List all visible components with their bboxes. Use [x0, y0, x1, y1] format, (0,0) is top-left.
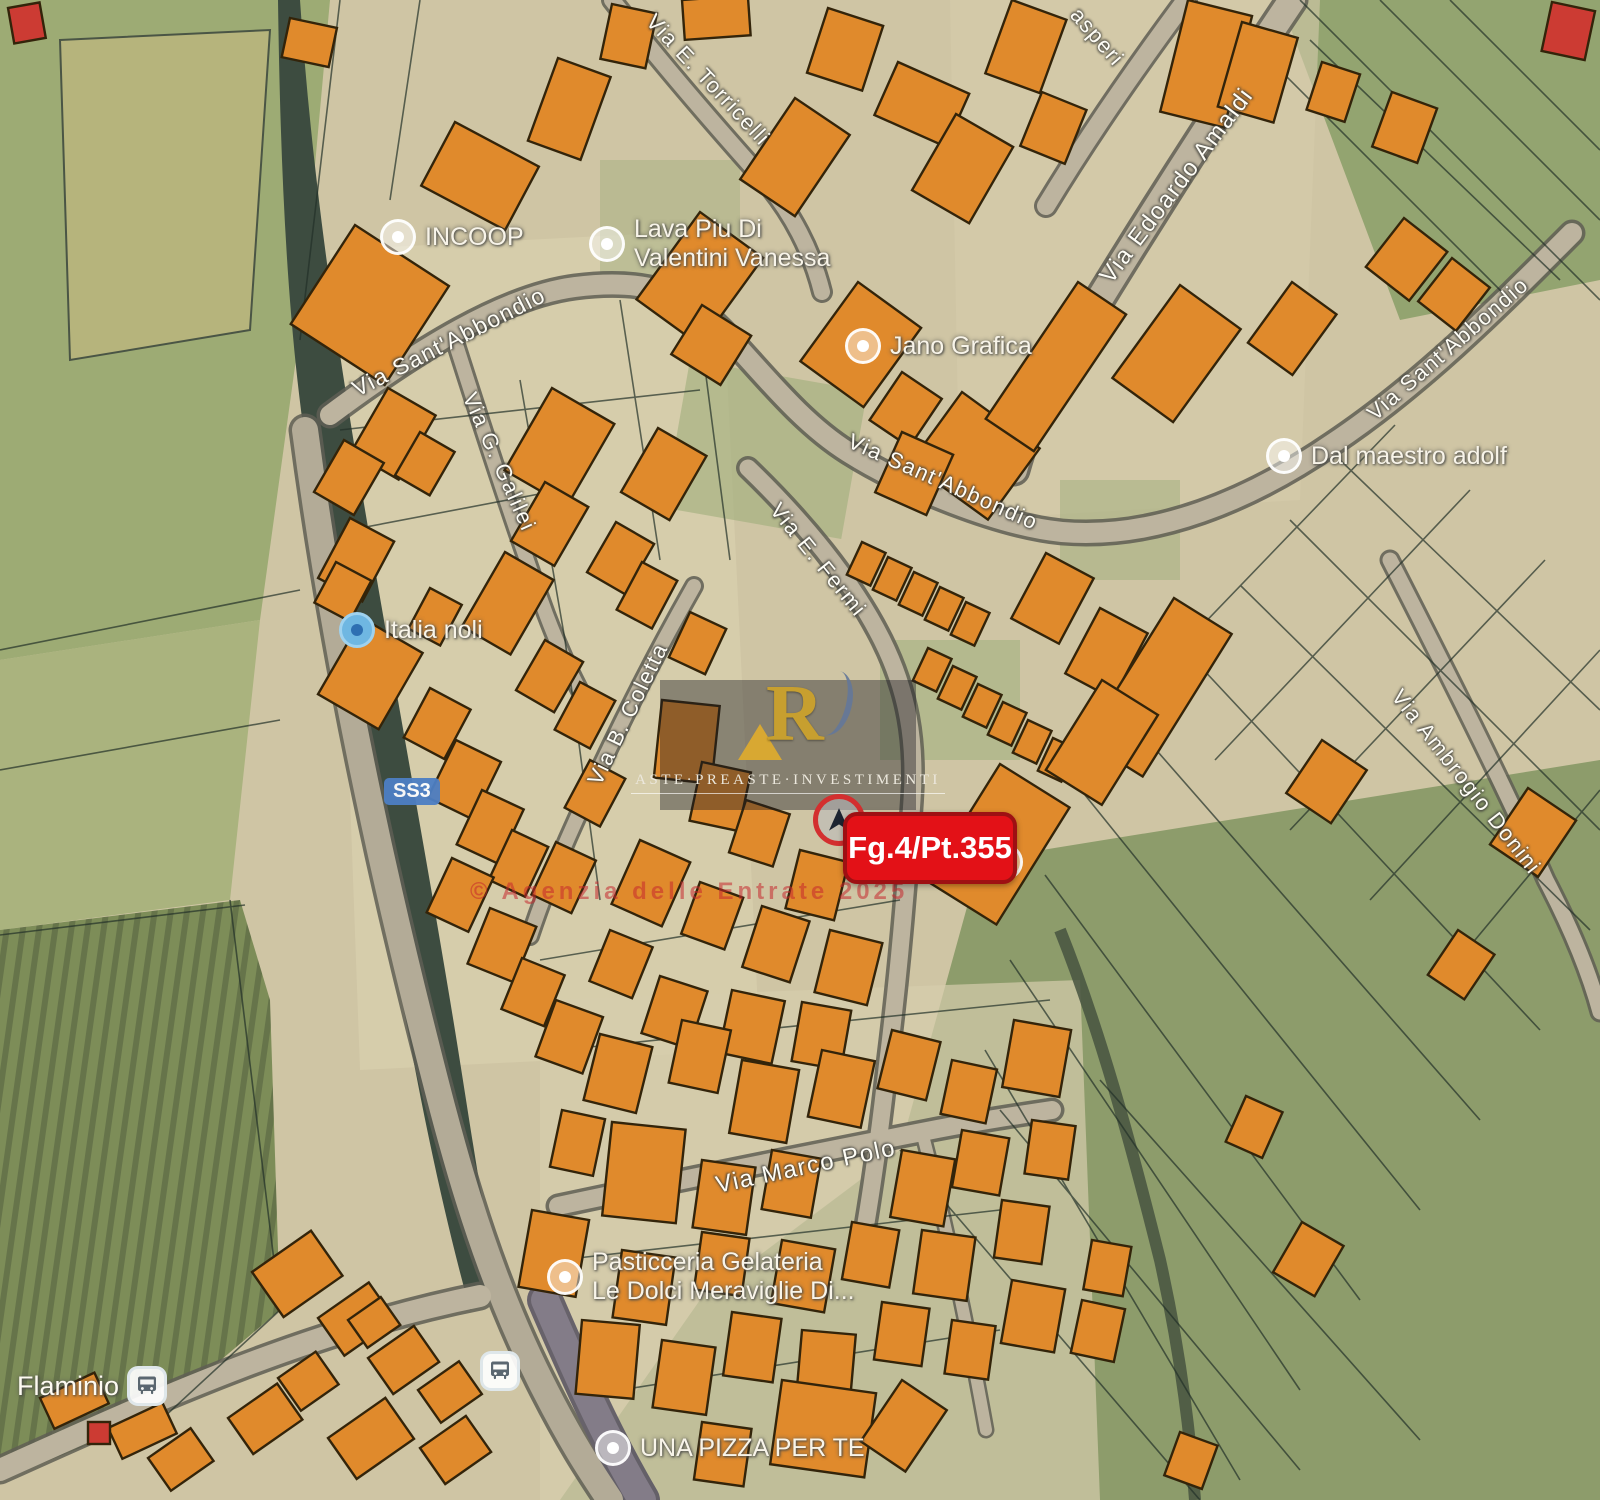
- place-icon[interactable]: [595, 1430, 631, 1466]
- bus-stop[interactable]: [480, 1351, 520, 1391]
- poi-label[interactable]: Lava Piu DiValentini Vanessa: [589, 215, 830, 273]
- street-label: Via E. Torricelli: [640, 9, 775, 151]
- place-icon[interactable]: [1266, 438, 1302, 474]
- street-label: asperi: [1065, 2, 1130, 71]
- poi-label-text: Dal maestro adolf: [1311, 442, 1507, 471]
- map-canvas[interactable]: Via Sant'AbbondioVia Sant'AbbondioVia Sa…: [0, 0, 1600, 1500]
- street-label: Via Sant'Abbondio: [844, 428, 1042, 535]
- street-label: Via Marco Polo: [713, 1134, 898, 1200]
- agency-watermark: R ASTE·PREASTE·INVESTIMENTI: [660, 680, 916, 810]
- bus-stop[interactable]: Flaminio: [127, 1366, 167, 1406]
- street-label: Via Sant'Abbondio: [348, 281, 551, 402]
- street-label: Via G. Galilei: [457, 389, 541, 536]
- bus-stop-label: Flaminio: [17, 1371, 119, 1402]
- poi-label-text: UNA PIZZA PER TE: [640, 1434, 865, 1463]
- place-icon-blue[interactable]: [339, 612, 375, 648]
- poi-label-text: Lava Piu DiValentini Vanessa: [634, 215, 830, 273]
- parcel-label[interactable]: Fg.4/Pt.355: [843, 812, 1017, 884]
- poi-label[interactable]: INCOOP: [380, 219, 524, 255]
- place-icon[interactable]: [547, 1259, 583, 1295]
- poi-label[interactable]: Pasticceria GelateriaLe Dolci Meraviglie…: [547, 1248, 855, 1306]
- poi-label[interactable]: Italia noli: [339, 612, 483, 648]
- street-label: Via Edoardo Amaldi: [1094, 83, 1259, 289]
- poi-label-text: Pasticceria GelateriaLe Dolci Meraviglie…: [592, 1248, 855, 1306]
- road-badge-ss3: SS3: [384, 778, 440, 805]
- place-icon[interactable]: [380, 219, 416, 255]
- copyright-watermark: © Agenzia delle Entrate 2025: [470, 878, 908, 906]
- bus-icon[interactable]: [127, 1366, 167, 1406]
- street-label: Via Ambrogio Donini: [1386, 684, 1547, 879]
- street-label: Via Sant'Abbondio: [1362, 272, 1534, 426]
- poi-label-text: Italia noli: [384, 616, 483, 645]
- poi-label-text: Jano Grafica: [890, 332, 1032, 361]
- poi-label-text: INCOOP: [425, 223, 524, 252]
- place-icon[interactable]: [845, 328, 881, 364]
- watermark-text: ASTE·PREASTE·INVESTIMENTI: [631, 772, 945, 794]
- watermark-logo: R: [728, 680, 848, 764]
- poi-label[interactable]: Jano Grafica: [845, 328, 1032, 364]
- place-icon[interactable]: [589, 226, 625, 262]
- poi-label[interactable]: Dal maestro adolf: [1266, 438, 1507, 474]
- poi-label[interactable]: UNA PIZZA PER TE: [595, 1430, 865, 1466]
- street-label: Via E. Fermi: [764, 498, 871, 622]
- bus-icon[interactable]: [480, 1351, 520, 1391]
